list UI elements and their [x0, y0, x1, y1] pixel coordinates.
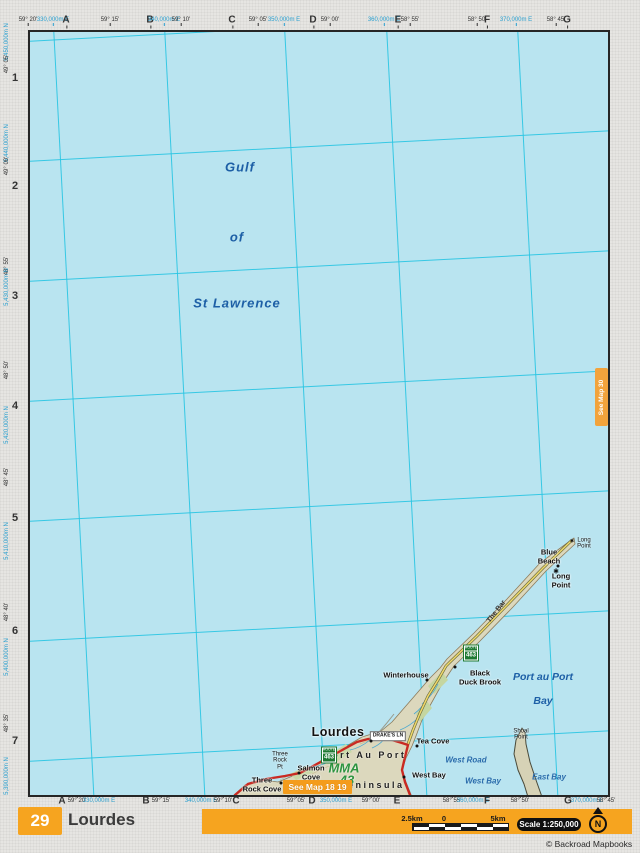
map-label: St Lawrence — [193, 297, 281, 312]
coordinate-label: E — [394, 796, 401, 807]
north-indicator: N — [589, 815, 607, 833]
coordinate-label: 58° 50' — [511, 798, 530, 804]
coordinate-label: 59° 00' — [362, 798, 381, 804]
scale-bar-right-label: 5km — [490, 814, 505, 823]
map-label: Tea Cove — [417, 738, 450, 747]
place-marker — [426, 679, 429, 682]
map-label: DRAKE'S LN — [370, 731, 406, 741]
map-label: Black Duck Brook — [459, 669, 501, 686]
place-marker: ✱ — [553, 569, 559, 576]
coordinate-label: 350,000m E — [320, 798, 352, 804]
map-label: West Bay — [465, 776, 501, 785]
map-page: 59° 20'330,000m EA59° 15'B340,000m E59° … — [0, 0, 640, 853]
page-number-badge: 29 — [18, 807, 62, 835]
north-arrow-icon — [593, 807, 603, 814]
coordinate-label: 59° 15' — [101, 17, 120, 23]
coordinate-label: F — [484, 15, 490, 26]
coordinate-label: 2 — [12, 180, 18, 192]
map-label: Shoal Point — [513, 729, 528, 742]
coordinate-label: 59° 10' — [172, 17, 191, 23]
place-marker — [416, 745, 419, 748]
scale-bar — [412, 823, 509, 831]
coordinate-label: 5,390,000m N — [4, 757, 10, 795]
map-label: West Bay — [412, 772, 446, 781]
coordinate-label: 49° 00' — [4, 157, 10, 176]
route-shield: ROUTE 463 — [321, 747, 337, 764]
map-label: Lourdes — [312, 725, 365, 739]
coordinate-label: 5 — [12, 512, 18, 524]
coordinate-label: 7 — [12, 735, 18, 747]
place-marker — [454, 666, 457, 669]
coordinate-label: F — [484, 796, 490, 807]
place-marker — [557, 565, 560, 568]
coordinate-label: 5,400,000m N — [4, 638, 10, 676]
coordinate-label: D — [308, 796, 315, 807]
coordinate-label: 4 — [12, 400, 18, 412]
scale-bar-left-label: 2.5km — [401, 814, 422, 823]
copyright: © Backroad Mapbooks — [546, 839, 632, 849]
route-shield-number: 463 — [464, 652, 478, 661]
coordinate-label: D — [309, 15, 316, 26]
place-marker — [403, 776, 406, 779]
map-label: Three Rock Pt — [272, 752, 288, 771]
coordinate-label: 330,000m E — [83, 798, 115, 804]
coordinate-label: 48° 50' — [4, 361, 10, 380]
coordinate-label: 6 — [12, 625, 18, 637]
map-label: Bay — [533, 695, 552, 707]
coordinate-label: 1 — [12, 72, 18, 84]
place-marker — [298, 772, 301, 775]
coordinate-label: C — [232, 796, 239, 807]
see-map-18-tab[interactable]: See Map 18 19 — [283, 780, 352, 794]
coordinate-label: 370,000m E — [500, 17, 532, 23]
coordinate-label: A — [58, 796, 65, 807]
see-map-30-tab[interactable]: See Map 30 — [595, 368, 608, 426]
coordinate-label: 48° 40' — [4, 603, 10, 622]
coordinate-label: 48° 45' — [4, 468, 10, 487]
route-shield: ROUTE 463 — [463, 645, 479, 662]
coordinate-label: 58° 55' — [401, 17, 420, 23]
coordinate-label: 59° 05' — [249, 17, 268, 23]
map-label: Port au Port — [513, 671, 573, 683]
coordinate-label: A — [62, 15, 69, 26]
coordinate-label: B — [142, 796, 149, 807]
map-label: Blue Beach — [538, 548, 561, 565]
coordinate-label: 350,000m E — [268, 17, 300, 23]
coordinate-label: 340,000m E — [185, 798, 217, 804]
coordinate-label: 5,420,000m N — [4, 406, 10, 444]
coordinate-label: C — [228, 15, 235, 26]
place-marker — [370, 740, 373, 743]
map-label: Winterhouse — [383, 672, 428, 681]
scale-label: Scale 1:250,000 — [517, 818, 581, 831]
map-label: East Bay — [532, 772, 566, 781]
map-label: Three Rock Cove — [243, 776, 282, 793]
coordinate-label: 5,430,000m N — [4, 268, 10, 306]
coordinate-label: 59° 15' — [152, 798, 171, 804]
map-label: Gulf — [225, 161, 255, 176]
coordinate-label: 59° 20' — [19, 17, 38, 23]
place-marker: ✱ — [570, 540, 574, 545]
coordinate-label: 5,410,000m N — [4, 522, 10, 560]
coordinate-label: 3 — [12, 290, 18, 302]
coordinate-label: 59° 10' — [214, 798, 233, 804]
coordinate-label: 58° 45' — [597, 798, 616, 804]
scale-bar-zero-label: 0 — [442, 814, 446, 823]
coordinate-label: 59° 00' — [321, 17, 340, 23]
map-area[interactable]: GulfofSt LawrencePort au PortBayThe BarB… — [28, 30, 610, 797]
route-shield-number: 463 — [322, 754, 336, 763]
map-label: Long Point — [577, 538, 591, 551]
page-title: Lourdes — [68, 810, 135, 830]
coordinate-label: 59° 05' — [287, 798, 306, 804]
map-label: West Road — [445, 755, 486, 764]
coordinate-label: G — [563, 15, 571, 26]
coordinate-label: 48° 35' — [4, 714, 10, 733]
map-label: of — [230, 231, 244, 246]
coordinate-label: 49° 05' — [4, 55, 10, 74]
